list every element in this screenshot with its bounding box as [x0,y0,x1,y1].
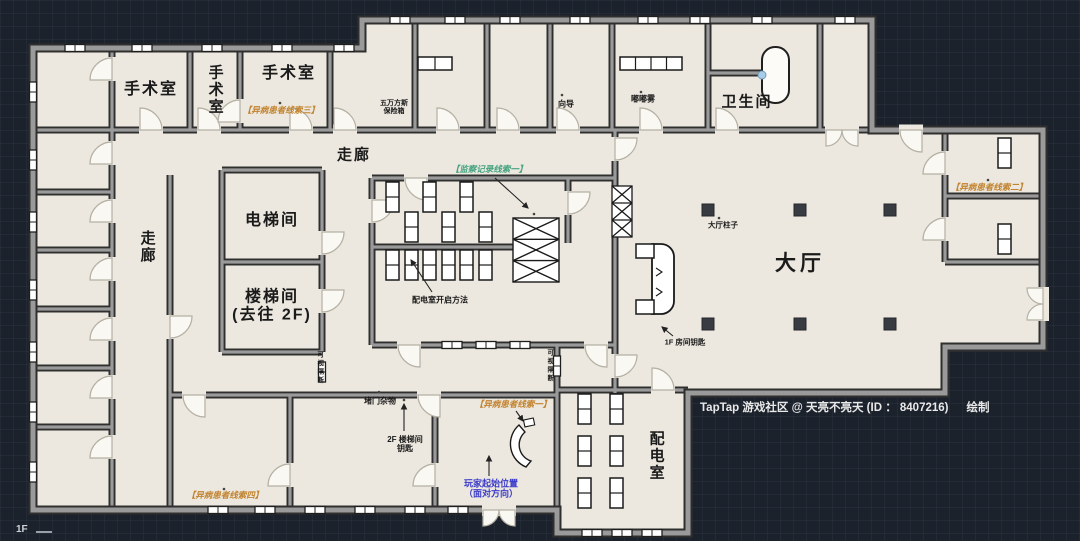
label-guide: 向导 [558,99,574,108]
clue-surveillance-1: 【监察记录线索一】 [451,165,528,175]
floor-marker: 1F [16,524,28,535]
label-safe: 五万方斯 保险箱 [380,100,408,116]
clue-patient-4: 【异病患者线索四】 [187,491,264,501]
stairwell-line2: (去往 2F) [232,307,312,325]
room-label-bathroom: 卫生间 [721,93,772,110]
room-label-operating-room-2: 手术室 [206,65,223,116]
label-door-clutter: 堵门杂物 [364,396,396,405]
credit-suffix: 绘制 [967,402,990,414]
f2-stair-key-line1: 2F 楼梯间 [387,435,423,444]
f2-stair-key-line2: 钥匙 [387,444,423,453]
label-f1-room-key: 1F 房间钥匙 [665,339,706,348]
room-label-elevator: 电梯间 [245,212,299,230]
room-label-operating-room-1: 手术室 [124,81,178,99]
safe-line2: 保险箱 [380,108,408,116]
label-hall-pillar: 大厅柱子 [708,222,738,231]
clue-patient-3: 【异病患者线索三】 [243,106,320,116]
label-f2-stair-key: 2F 楼梯间 钥匙 [387,435,423,453]
label-fog-item: 嘟嘟雾 [631,94,655,103]
label-partition-right: 可视隔断 [545,349,552,383]
player-start-line2: （面对方向） [464,489,518,499]
label-player-start: 玩家起始位置 （面对方向） [464,479,518,500]
room-label-power-room: 配电室 [647,431,664,482]
safe-line1: 五万方斯 [380,100,408,108]
room-label-corridor-left: 走廊 [138,230,155,264]
stairwell-line1: 楼梯间 [232,289,312,307]
floor-plan-stage: 手术室 手术室 手术室 【异病患者线索三】 走廊 走廊 电梯间 楼梯间 (去往 … [0,0,1080,541]
clue-patient-1: 【异病患者线索一】 [475,400,552,410]
room-label-corridor-top: 走廊 [337,146,371,163]
credit-footer: TapTap 游戏社区 @ 天亮不亮天 (ID ： 8407216)绘制 [700,399,990,415]
label-power-room-method: 配电室开启方法 [412,295,468,304]
elevator-shaft-icon [612,186,632,237]
credit-text: TapTap 游戏社区 @ 天亮不亮天 (ID ： 8407216) [700,402,949,414]
clue-patient-2: 【异病患者线索二】 [951,183,1028,193]
floor-marker-dash [36,531,52,533]
player-start-line1: 玩家起始位置 [464,479,518,489]
label-partition-left: 可视隔断 [315,351,322,385]
pallet-rack-icon [513,218,559,282]
room-label-operating-room-3: 手术室 [262,65,316,83]
room-label-stairwell: 楼梯间 (去往 2F) [232,289,312,326]
room-label-hall: 大厅 [775,252,825,276]
